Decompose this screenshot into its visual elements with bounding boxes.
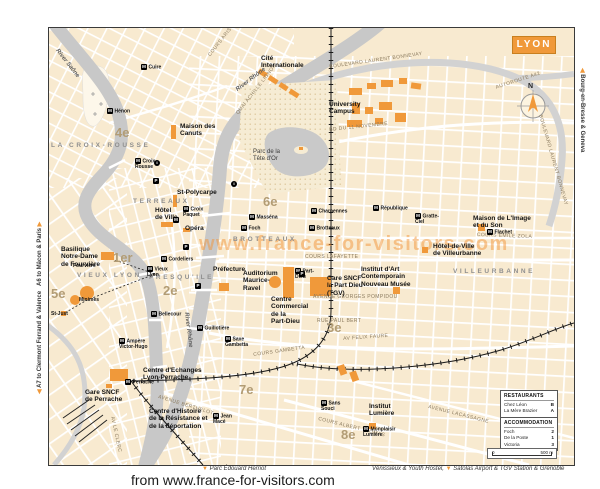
- parking-cordeliers: P: [183, 244, 191, 250]
- lyon-city-map: 4e1er5e2e6e3e7e8eLA CROIX-ROUSSETERREAUX…: [48, 27, 575, 466]
- station-hotel-de-ville-metro: M: [173, 217, 181, 223]
- accommodation-rows: Foch2De la Poste1Victoria3: [504, 429, 554, 448]
- prefecture-building: [219, 283, 229, 291]
- legend-row: La Mère BrazierA: [504, 408, 554, 414]
- edge-bourg-text: Bourg-en-Bresse & Geneva: [579, 74, 585, 152]
- up-arrow-icon: ◀: [579, 68, 585, 73]
- district-1er: 1er: [113, 250, 133, 265]
- restaurants-legend: RESTAURANTS Chez LéonBLa Mère BrazierA: [500, 390, 558, 418]
- street-rue-paul-bert: RUE PAUL BERT: [317, 318, 361, 324]
- station-croix-rousse: MCroixRousse: [135, 158, 155, 170]
- metro-icon: M: [147, 266, 153, 272]
- edge-label-a7: ◀ A7 to Clermont Ferrand & Valence: [36, 291, 43, 394]
- metro-icon: M: [213, 413, 219, 419]
- metro-icon: M: [107, 108, 113, 114]
- station-vieux-lyon: MVieuxLyon: [147, 266, 168, 278]
- poi-centre-histoire: Centre d'Histoirede la Résistance etde l…: [149, 408, 208, 430]
- info-terreaux: i: [231, 181, 239, 187]
- hotel-de-ville-building: [161, 222, 173, 227]
- district-7e: 7e: [239, 382, 253, 397]
- info-icon: i: [154, 160, 160, 166]
- up-arrow-icon: ▶: [37, 222, 43, 227]
- compass-north-label: N: [528, 83, 533, 90]
- metro-icon: M: [225, 336, 231, 342]
- venissieux-text: Vénissieux & Youth Hostel,: [372, 466, 444, 472]
- metro-icon: M: [173, 217, 179, 223]
- poi-hdv-villeurbanne: Hôtel-de-Villede Villeurbanne: [433, 243, 481, 258]
- station-croix-paquet: MCroixPaquet: [183, 206, 203, 218]
- metro-icon: M: [309, 225, 315, 231]
- parking-icon: P: [183, 244, 189, 250]
- station-st-just: St-Just: [51, 311, 68, 317]
- station-cordeliers: MCordeliers: [161, 256, 193, 262]
- station-foch: MFoch: [241, 225, 260, 231]
- station-guillotiere: MGuillotière: [197, 325, 229, 331]
- station-flachet: MFlachet: [487, 229, 512, 235]
- station-saxe-gambetta: MSaxeGambetta: [225, 336, 248, 348]
- parking-terreaux: P: [153, 178, 161, 184]
- station-perrache: MPerrache: [125, 379, 154, 385]
- district-4e: 4e: [115, 125, 129, 140]
- poi-institut-art: Institut d'ArtContemporainNouveau Musée: [361, 266, 411, 288]
- district-6e: 6e: [263, 194, 277, 209]
- maison-des-canuts-building: [171, 125, 176, 139]
- centre-commercial-building: [283, 267, 294, 298]
- poi-st-polycarpe: St-Polycarpe: [177, 189, 217, 196]
- poi-auditorium: AuditoriumMaurice-Ravel: [243, 270, 278, 292]
- parking-bellecour: P: [195, 283, 203, 289]
- metro-icon: M: [119, 338, 125, 344]
- station-minimes: Minimes: [79, 297, 99, 303]
- metro-icon: M: [249, 214, 255, 220]
- accommodation-legend: ACCOMMODATION Foch2De la Poste1Victoria3: [500, 417, 558, 451]
- street-cours-lafayette: COURS LAFAYETTE: [305, 254, 358, 260]
- down-arrow-icon: ▼: [446, 466, 452, 472]
- metro-icon: M: [183, 206, 189, 212]
- poi-gare-perrache: Gare SNCFde Perrache: [85, 389, 122, 404]
- metro-icon: M: [197, 325, 203, 331]
- district-2e: 2e: [163, 283, 177, 298]
- poi-cc-part-dieu: CentreCommercialde laPart-Dieu: [271, 296, 308, 325]
- poi-institut-lumiere: InstitutLumière: [369, 403, 394, 418]
- district-5e: 5e: [51, 286, 65, 301]
- poi-parc-tete-dor: Parc de laTête d'Or: [253, 149, 280, 163]
- info-icon: i: [231, 181, 237, 187]
- parking-icon: P: [299, 271, 305, 277]
- metro-icon: M: [311, 208, 317, 214]
- edge-label-satolas: Vénissieux & Youth Hostel, ▼ Satolas Air…: [372, 466, 564, 472]
- restaurants-rows: Chez LéonBLa Mère BrazierA: [504, 402, 554, 415]
- poi-maison-des-canuts: Maison desCanuts: [180, 123, 215, 138]
- metro-icon: M: [241, 225, 247, 231]
- metro-icon: M: [161, 256, 167, 262]
- station-fourviere: Fourvière: [73, 263, 96, 269]
- edge-label-a6: A6 to Mâcon & Paris ▶: [36, 222, 43, 286]
- station-gratte-ciel: MGratte-Ciel: [415, 213, 439, 225]
- metro-icon: M: [373, 205, 379, 211]
- station-henon: MHénon: [107, 108, 130, 114]
- metro-icon: M: [363, 426, 369, 432]
- parking-brotteaux: P: [299, 271, 307, 277]
- poi-university-campus: UniversityCampus: [329, 101, 360, 116]
- poi-gare-part-dieu: Gare SNCFla Part Dieu(TGV): [327, 275, 363, 297]
- metro-icon: M: [125, 379, 131, 385]
- poi-maison-image-son: Maison de L'Imageet du Son: [473, 215, 531, 230]
- station-cuire: MCuire: [141, 64, 161, 70]
- area-vieux-lyon: VIEUX LYON: [77, 272, 142, 279]
- station-monplaisir-lumiere: MMonplaisirLumière: [363, 426, 396, 438]
- station-jean-mace: MJeanMacé: [213, 413, 232, 425]
- edge-a7-text: A7 to Clermont Ferrand & Valence: [37, 291, 43, 388]
- scale-bar: 0 500 m: [487, 448, 557, 459]
- map-title-badge: LYON: [512, 36, 556, 54]
- area-brotteaux: BROTTEAUX: [233, 236, 297, 243]
- metro-icon: M: [135, 158, 141, 164]
- edge-a6-text: A6 to Mâcon & Paris: [37, 228, 43, 286]
- metro-icon: M: [487, 229, 493, 235]
- poi-cite-internationale: CitéInternationale: [261, 55, 304, 70]
- metro-icon: M: [321, 400, 327, 406]
- area-villeurbanne: VILLEURBANNE: [453, 268, 535, 275]
- parking-icon: P: [153, 178, 159, 184]
- attribution: from www.france-for-visitors.com: [131, 472, 335, 488]
- metro-icon: M: [151, 311, 157, 317]
- station-bellecour: MBellecour: [151, 311, 181, 317]
- restaurants-legend-title: RESTAURANTS: [504, 393, 554, 401]
- metro-icon: M: [141, 64, 147, 70]
- station-brotteaux: MBrotteaux: [309, 225, 340, 231]
- metro-icon: M: [415, 213, 421, 219]
- area-la-croix-rousse: LA CROIX-ROUSSE: [51, 142, 150, 149]
- station-ampere: MAmpèreVictor-Hugo: [119, 338, 148, 350]
- station-charpennes: MCharpennes: [311, 208, 347, 214]
- institut-art-building: [393, 287, 400, 294]
- poi-opera: Opéra: [185, 225, 204, 232]
- station-republique: MRépublique: [373, 205, 408, 211]
- station-massena: MMasséna: [249, 214, 278, 220]
- area-terreaux: TERREAUX: [133, 198, 190, 205]
- edge-label-bourg: ◀ Bourg-en-Bresse & Geneva: [579, 68, 586, 152]
- parking-icon: P: [195, 283, 201, 289]
- station-sans-souci: MSansSouci: [321, 400, 340, 412]
- satolas-text: Satolas Airport & TGV Station & Grenoble: [453, 466, 564, 472]
- poi-prefecture: Préfecture: [213, 266, 245, 273]
- accommodation-legend-title: ACCOMMODATION: [504, 420, 554, 428]
- info-croix-rousse: i: [154, 160, 162, 166]
- scale-line: [492, 452, 552, 456]
- down-arrow-icon: ◀: [37, 389, 43, 394]
